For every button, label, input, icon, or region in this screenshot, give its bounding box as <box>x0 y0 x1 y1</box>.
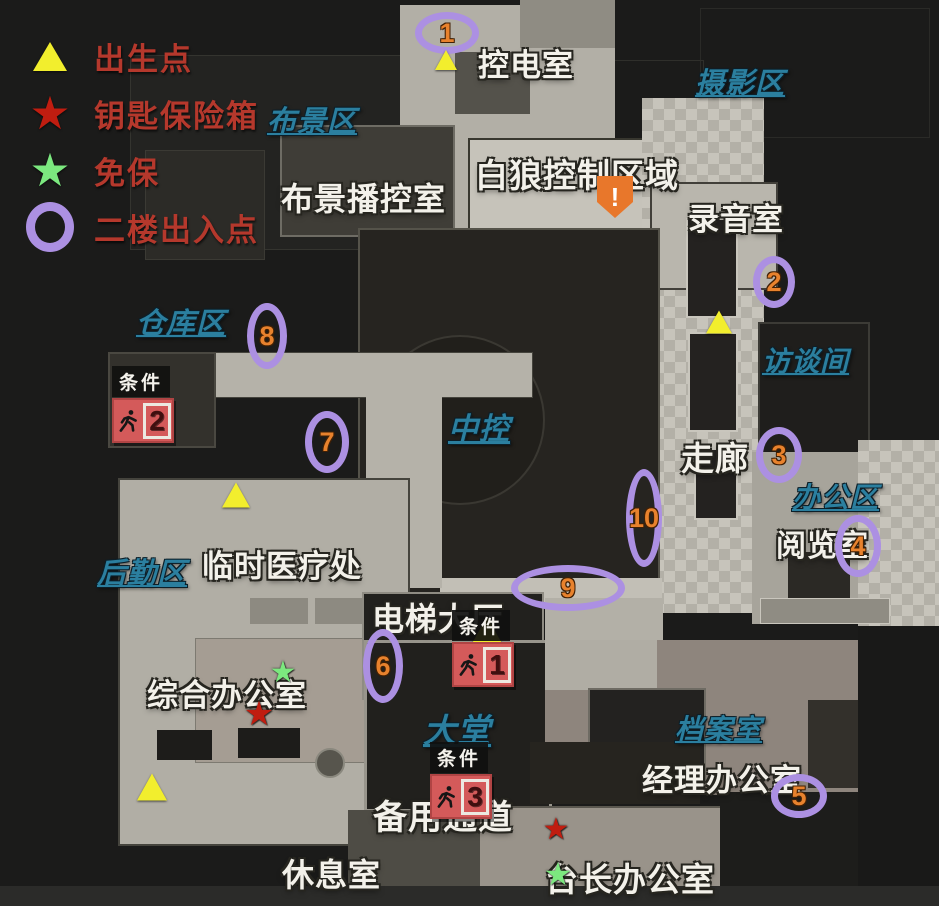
floor2-point-number: 1 <box>439 20 454 47</box>
legend: 出生点 ★ 钥匙保险箱 ★ 免保 二楼出入点 <box>26 34 259 249</box>
floor2-point-number: 6 <box>375 653 390 680</box>
exit-point-3: 条件3 <box>430 742 492 819</box>
floor2-point-4: 4 <box>835 515 881 577</box>
key-safe-marker-1: ★ <box>244 697 274 731</box>
floor2-point-number: 4 <box>850 533 865 560</box>
exit-number: 1 <box>483 647 511 683</box>
floor2-point-number: 7 <box>319 429 334 456</box>
area-label-5: 中控 <box>448 404 510 448</box>
spawn-point-2 <box>706 311 732 334</box>
floor2-point-3: 3 <box>756 427 802 483</box>
floor2-point-5: 5 <box>771 774 827 818</box>
area-label-3: 仓库区 <box>136 300 226 342</box>
floor2-point-6: 6 <box>363 629 403 703</box>
spawn-point-3 <box>222 483 250 508</box>
floor2-point-10: 10 <box>626 469 662 567</box>
floor2-point-8: 8 <box>247 303 287 369</box>
warning-icon: ! <box>597 176 633 218</box>
floor2-point-2: 2 <box>753 256 795 308</box>
running-man-icon <box>433 781 460 813</box>
legend-label-free-safe: 免保 <box>94 148 160 193</box>
area-label-4: 访谈间 <box>762 340 849 380</box>
floor2-ring-icon-shape <box>26 202 74 252</box>
room-label-1: 控电室 <box>478 40 574 85</box>
area-label-1: 摄影区 <box>695 60 785 102</box>
map-canvas: 摄影区布景区仓库区访谈间中控办公区后勤区大堂档案室控电室布景播控室白狼控制区域录… <box>0 0 939 906</box>
running-man-icon <box>115 405 142 437</box>
room-label-5: 走廊 <box>681 432 749 480</box>
exit-condition-label: 条件 <box>430 742 488 773</box>
room-label-3: 白狼控制区域 <box>475 149 679 197</box>
floor2-point-number: 2 <box>766 269 781 296</box>
exit-badge-1: 1 <box>452 642 514 687</box>
room-label-7: 临时医疗处 <box>202 541 362 586</box>
key-safe-marker-2: ★ <box>543 815 570 845</box>
spawn-triangle-icon <box>26 42 74 71</box>
area-label-2: 布景区 <box>267 98 357 140</box>
area-label-7: 后勤区 <box>97 550 187 592</box>
spawn-point-1 <box>435 50 457 70</box>
floor2-ring-icon <box>26 202 74 252</box>
exit-condition-label: 条件 <box>112 366 170 397</box>
legend-row-free-safe: ★ 免保 <box>26 148 259 192</box>
floor2-point-number: 5 <box>791 783 806 810</box>
floor2-point-number: 9 <box>560 575 575 602</box>
floor2-point-number: 10 <box>629 505 659 532</box>
floor2-point-7: 7 <box>305 411 349 473</box>
legend-row-floor2: 二楼出入点 <box>26 205 259 249</box>
running-man-icon <box>455 649 482 681</box>
legend-row-key-safe: ★ 钥匙保险箱 <box>26 91 259 135</box>
legend-label-key-safe: 钥匙保险箱 <box>94 91 259 136</box>
area-label-6: 办公区 <box>792 476 879 516</box>
legend-label-spawn: 出生点 <box>94 34 193 79</box>
free-safe-marker-2: ★ <box>544 858 573 890</box>
floor2-point-number: 3 <box>771 442 786 469</box>
exit-point-2: 条件2 <box>112 366 174 443</box>
key-safe-star-icon: ★ <box>26 90 74 136</box>
exit-badge-2: 2 <box>112 398 174 443</box>
area-label-9: 档案室 <box>675 708 762 748</box>
exit-number: 2 <box>143 403 171 439</box>
exit-number: 3 <box>461 779 489 815</box>
free-safe-marker-1: ★ <box>270 658 297 688</box>
exit-condition-label: 条件 <box>452 610 510 641</box>
free-safe-star-icon: ★ <box>26 147 74 193</box>
floor2-point-1: 1 <box>415 12 479 54</box>
exit-badge-3: 3 <box>430 774 492 819</box>
exit-point-1: 条件1 <box>452 610 514 687</box>
floor2-point-number: 8 <box>259 323 274 350</box>
spawn-triangle-icon-shape <box>33 42 67 71</box>
room-label-13: 休息室 <box>282 850 381 896</box>
spawn-point-5 <box>137 774 167 801</box>
legend-row-spawn: 出生点 <box>26 34 259 78</box>
floor2-point-9: 9 <box>511 565 625 611</box>
room-label-4: 录音室 <box>688 194 784 239</box>
room-label-2: 布景播控室 <box>281 174 446 220</box>
legend-label-floor2: 二楼出入点 <box>94 205 259 250</box>
